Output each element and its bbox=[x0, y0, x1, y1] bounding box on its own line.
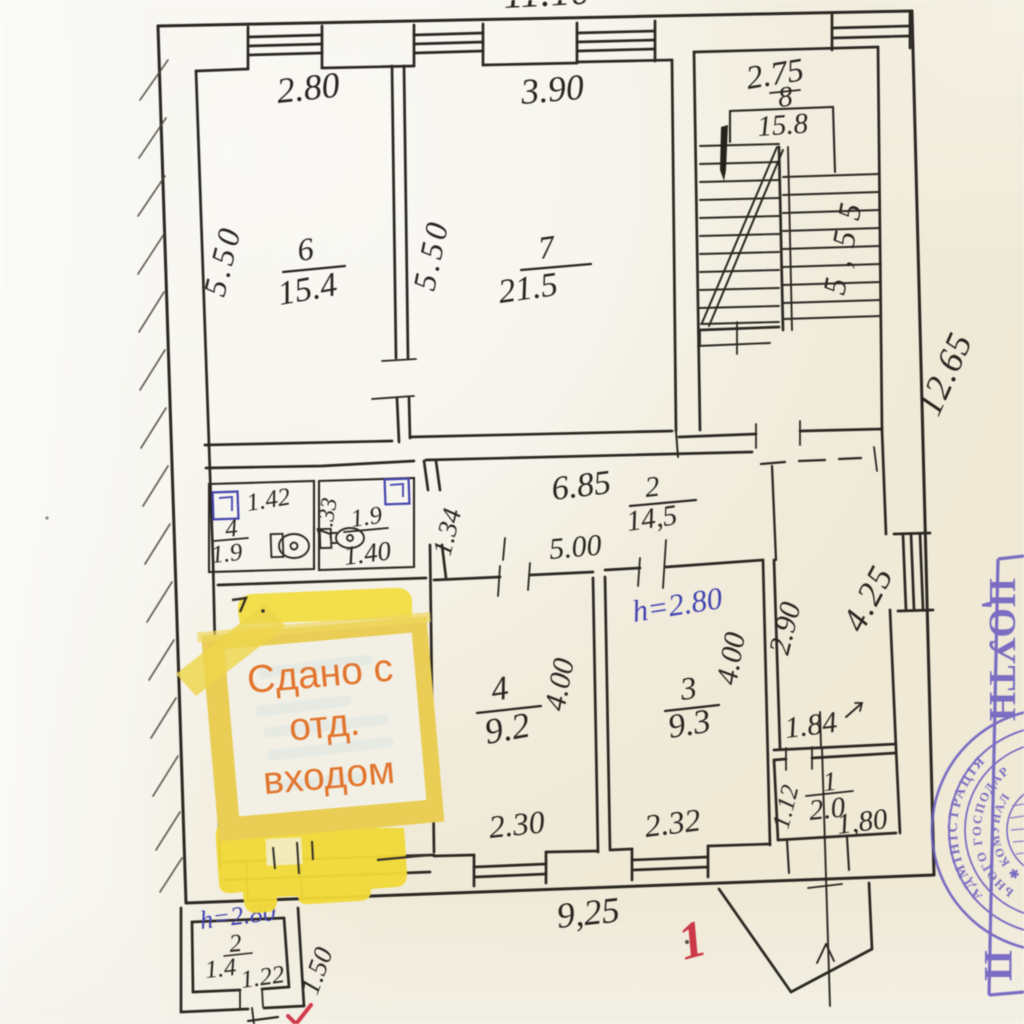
svg-text:1.40: 1.40 bbox=[342, 535, 393, 571]
svg-text:П: П bbox=[976, 950, 1021, 981]
svg-text:1,80: 1,80 bbox=[835, 803, 890, 841]
svg-text:2.32: 2.32 bbox=[642, 801, 702, 844]
svg-text:1.9: 1.9 bbox=[210, 539, 244, 569]
svg-text:3.90: 3.90 bbox=[518, 67, 585, 112]
svg-text:15.8: 15.8 bbox=[756, 107, 809, 142]
svg-text:6.85: 6.85 bbox=[549, 464, 613, 508]
svg-text:2.30: 2.30 bbox=[487, 803, 546, 845]
svg-text:9,25: 9,25 bbox=[555, 890, 622, 936]
svg-text:2.80: 2.80 bbox=[275, 65, 342, 111]
svg-text:1.84: 1.84 bbox=[783, 706, 839, 745]
svg-text:отд.: отд. bbox=[287, 701, 361, 750]
svg-text:ЦОУТН: ЦОУТН bbox=[981, 578, 1023, 722]
svg-text:5.00: 5.00 bbox=[548, 529, 603, 566]
svg-text:1.4: 1.4 bbox=[204, 954, 238, 984]
